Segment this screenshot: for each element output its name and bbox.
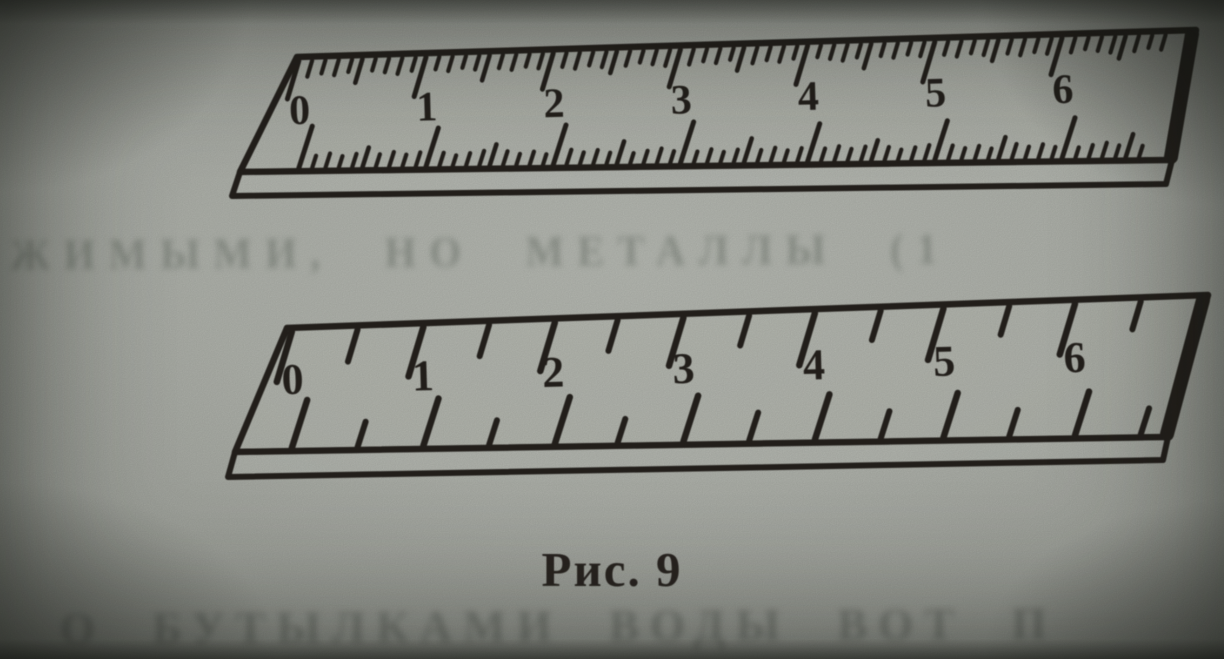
- ruler-face: [235, 295, 1208, 452]
- bottom-ruler-illustration: 0123456: [228, 295, 1208, 477]
- scale-number: 3: [670, 77, 692, 124]
- scale-number: 6: [1052, 67, 1074, 114]
- scale-number: 6: [1063, 333, 1086, 383]
- scale-number: 0: [288, 88, 310, 135]
- scale-number: 4: [797, 74, 819, 121]
- figure-caption: Рис. 9: [0, 541, 1224, 598]
- scale-number: 2: [542, 347, 565, 397]
- scale-number: 5: [933, 336, 956, 386]
- scale-number: 0: [281, 355, 304, 405]
- book-page-photo: ОЖИМЫМИ, НО МЕТАЛЛЫ (1 О БУТЫЛКАМИ ВОДЫ …: [0, 0, 1224, 659]
- scale-number: 2: [543, 81, 565, 128]
- scale-number: 5: [924, 70, 946, 117]
- top-ruler-illustration: 0123456: [232, 30, 1196, 196]
- scale-number: 3: [672, 344, 695, 394]
- scale-number: 4: [802, 340, 825, 390]
- scale-number: 1: [416, 84, 438, 131]
- scale-number: 1: [411, 351, 434, 401]
